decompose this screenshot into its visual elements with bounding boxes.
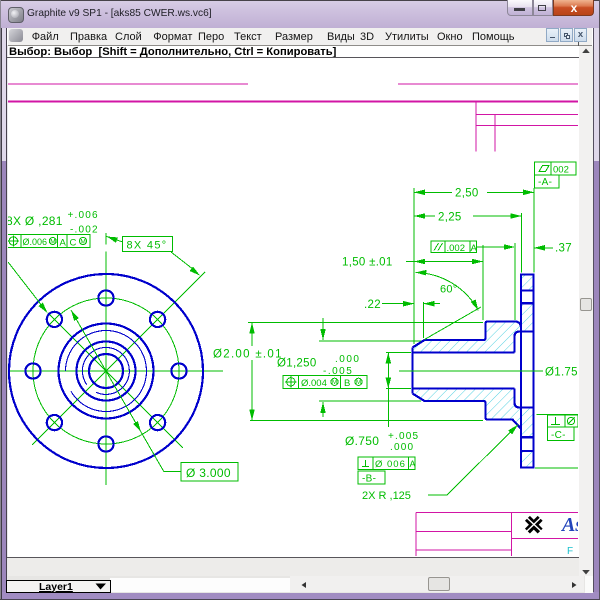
svg-text:002: 002 [553, 165, 569, 176]
svg-text:Ø.004: Ø.004 [301, 378, 327, 389]
svg-text:Ø2.00 ±.01: Ø2.00 ±.01 [213, 349, 283, 361]
svg-text:2,25: 2,25 [438, 212, 462, 224]
svg-text:Ø.006: Ø.006 [23, 237, 48, 247]
svg-text:2,50: 2,50 [455, 188, 479, 200]
svg-text:Ø1,250: Ø1,250 [277, 358, 317, 370]
svg-text:M: M [50, 238, 55, 245]
svg-text:-C-: -C- [551, 430, 566, 441]
svg-text:Ø 3.000: Ø 3.000 [186, 466, 231, 480]
svg-text:-A-: -A- [538, 177, 552, 188]
svg-text:8X 45°: 8X 45° [127, 240, 168, 252]
svg-text:Ø.750: Ø.750 [345, 434, 379, 448]
svg-text:A: A [471, 243, 478, 254]
svg-text:-B-: -B- [362, 474, 376, 485]
svg-text:A: A [410, 459, 416, 469]
svg-text:M: M [332, 379, 337, 386]
svg-text:.22: .22 [364, 299, 381, 311]
svg-text:+.005: +.005 [388, 431, 419, 442]
svg-text:Ø1.75: Ø1.75 [545, 367, 578, 379]
svg-text:C: C [70, 237, 77, 248]
svg-text:.37: .37 [555, 243, 572, 255]
svg-text:Ø 006: Ø 006 [375, 459, 406, 470]
svg-text:2X R ,125: 2X R ,125 [362, 490, 411, 502]
svg-text:+.006: +.006 [68, 210, 99, 221]
svg-text:As: As [560, 514, 578, 536]
svg-text:B: B [344, 378, 350, 389]
svg-text:M: M [80, 238, 85, 245]
svg-text:.002: .002 [447, 243, 466, 254]
svg-text:.000: .000 [390, 442, 414, 453]
svg-text:M: M [356, 379, 361, 386]
svg-text:8X Ø ,281: 8X Ø ,281 [8, 214, 63, 228]
svg-text:A: A [60, 237, 67, 248]
svg-text:1,50 ±.01: 1,50 ±.01 [342, 257, 393, 269]
svg-text:-.002: -.002 [70, 225, 99, 236]
svg-text:F: F [567, 546, 573, 556]
svg-text:.000: .000 [335, 354, 360, 365]
svg-text:60°: 60° [440, 284, 458, 296]
